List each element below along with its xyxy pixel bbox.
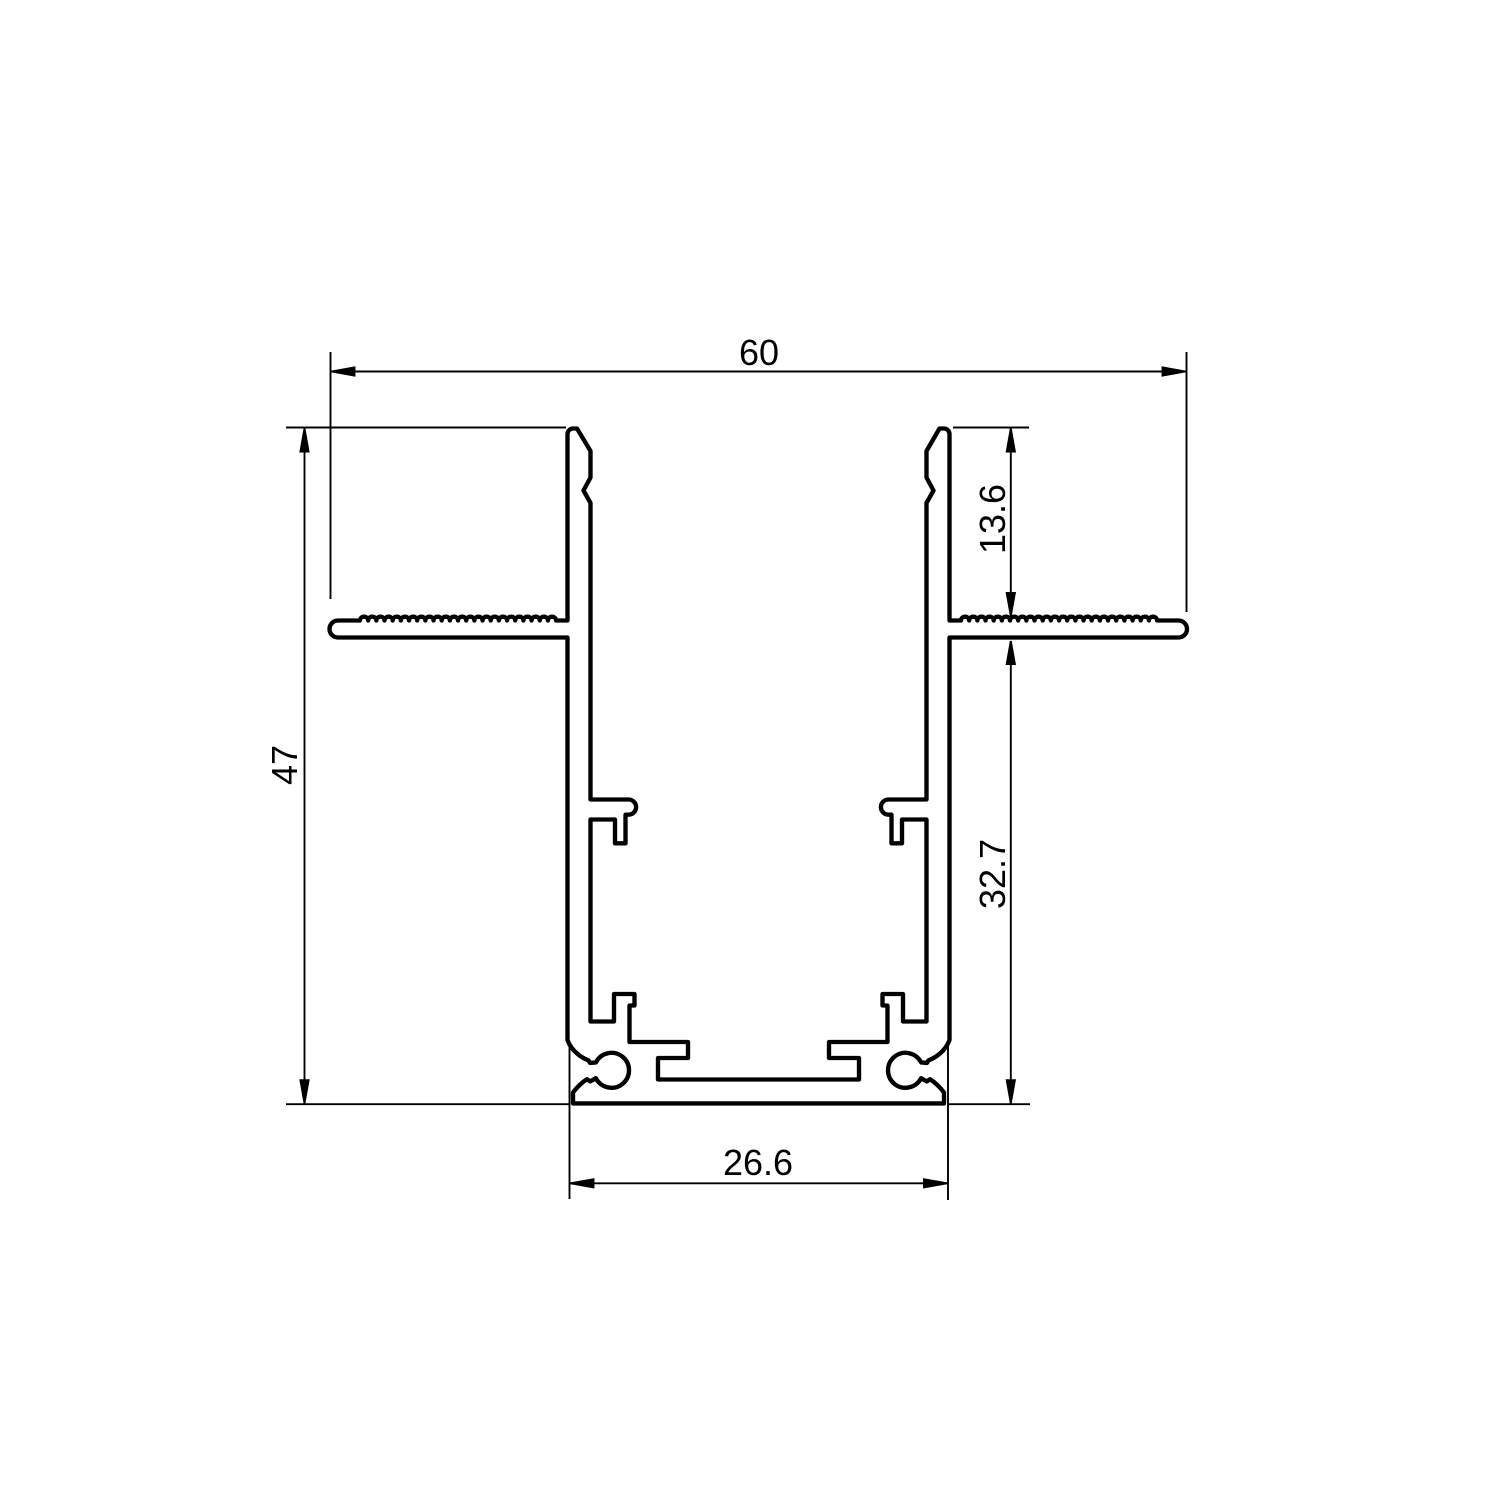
svg-text:32.7: 32.7 bbox=[972, 839, 1013, 909]
svg-text:26.6: 26.6 bbox=[723, 1142, 793, 1183]
svg-text:47: 47 bbox=[264, 745, 305, 785]
svg-text:13.6: 13.6 bbox=[972, 484, 1013, 554]
svg-text:60: 60 bbox=[739, 332, 779, 373]
